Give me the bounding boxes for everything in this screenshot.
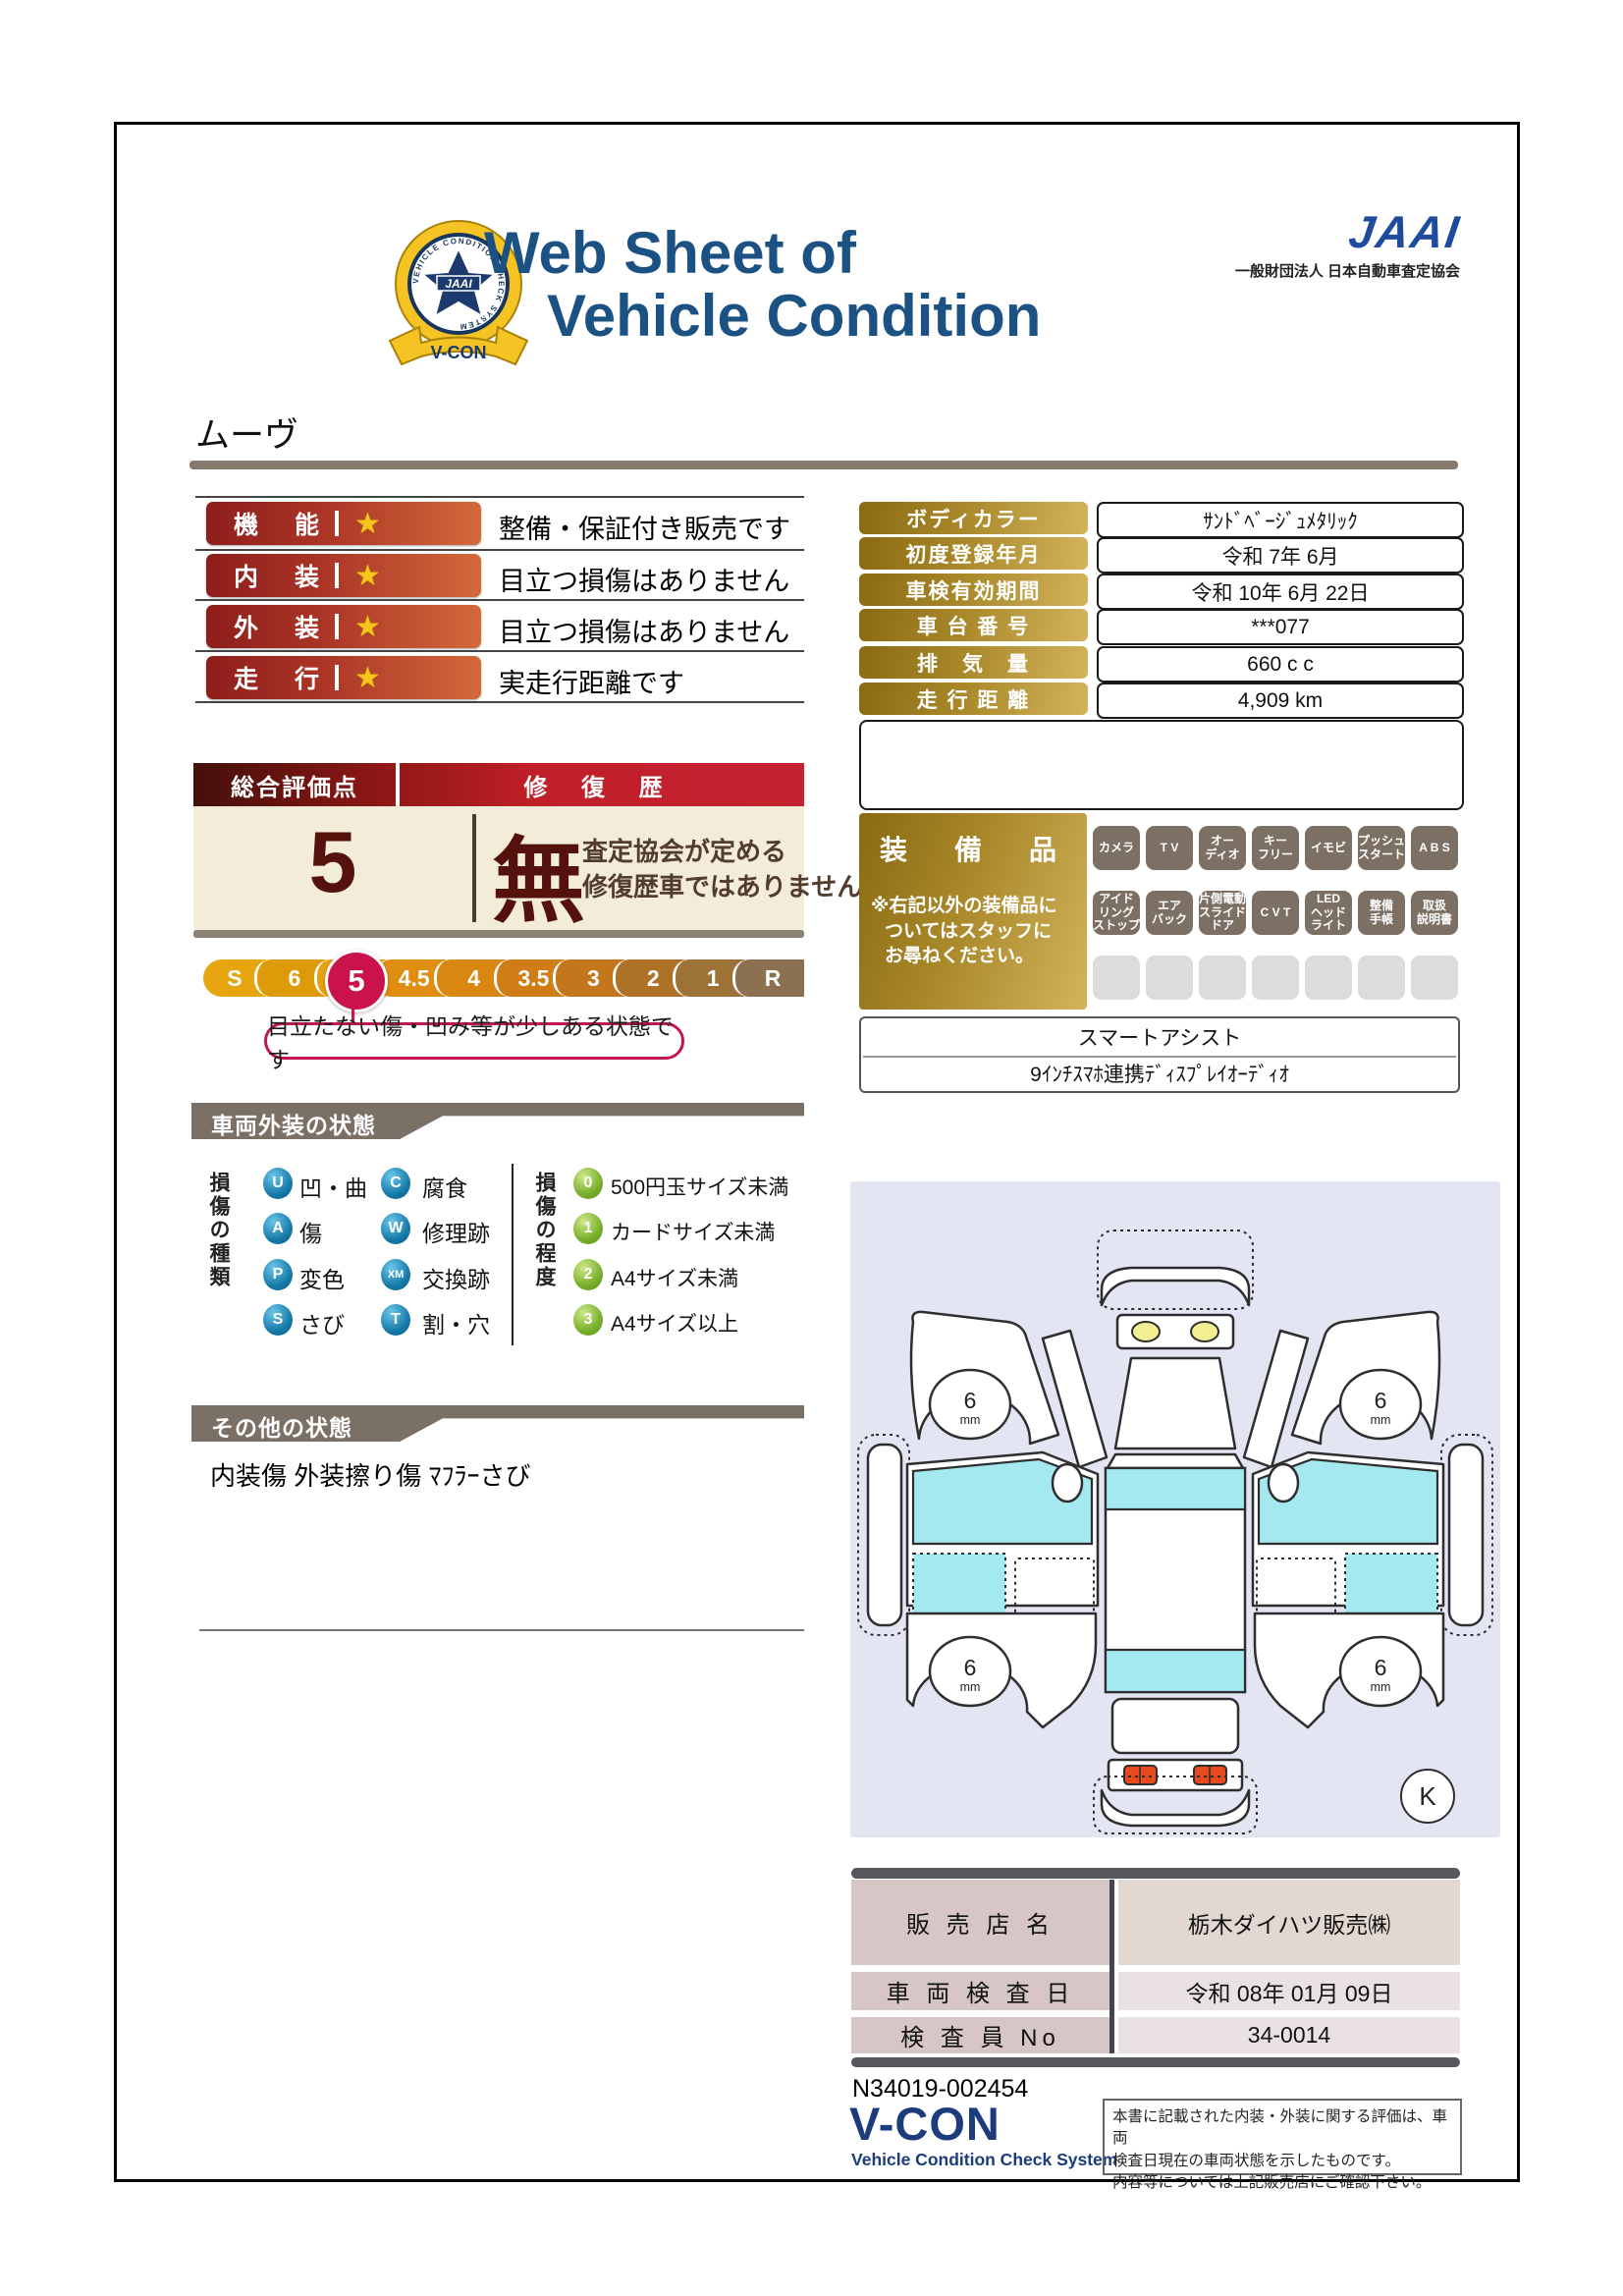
divider (335, 511, 339, 536)
equip-badge-audio: オー ディオ (1199, 826, 1246, 870)
info-value-chassis-no: ***077 (1097, 609, 1464, 645)
damage-type-label: 腐食 (422, 1170, 467, 1203)
windshield (1106, 1468, 1245, 1509)
info-value-mileage: 4,909 km (1097, 683, 1464, 719)
rating-badge-mileage: 走 行★ (206, 656, 481, 699)
legend-divider (512, 1164, 514, 1345)
info-label-mileage: 走 行 距 離 (859, 683, 1088, 715)
info-label-chassis-no: 車 台 番 号 (859, 609, 1088, 641)
damage-grade-icon-0: 0 (573, 1168, 603, 1199)
rating-label: 走 行 (206, 660, 325, 695)
equip-badge-empty (1093, 956, 1140, 1000)
rating-desc: 整備・保証付き販売です (499, 508, 790, 546)
equip-badge-idlingstop: アイド リング ストップ (1093, 891, 1140, 935)
page: VEHICLE CONDITION CHECK SYSTEM JAAI V-CO… (0, 0, 1623, 2296)
info-value-inspection-period: 令和 10年 6月 22日 (1097, 574, 1464, 610)
rating-separator (195, 701, 804, 703)
rating-badge-function: 機 能★ (206, 502, 481, 545)
equip-badge-keyfree: キー フリー (1252, 826, 1299, 870)
svg-text:mm: mm (960, 1413, 981, 1427)
damage-grade-label: A4サイズ以上 (611, 1308, 738, 1338)
svg-text:6: 6 (964, 1388, 977, 1413)
equipment-badges: カメラ T V オー ディオ キー フリー イモビ プッシュ スタート A B … (1093, 826, 1460, 1000)
jaai-logo: JAAI (1231, 205, 1464, 258)
overall-score-title: 総合評価点 (193, 768, 396, 802)
equip-badge-empty (1252, 956, 1299, 1000)
divider (335, 665, 339, 690)
car-diagram-panel: 6 mm 6 mm 6 mm 6 mm K (850, 1181, 1500, 1837)
damage-grade-icon-1: 1 (573, 1213, 603, 1244)
svg-text:6: 6 (964, 1655, 977, 1680)
overall-score-body: 5 無 査定協会が定める 修復歴車ではありません (193, 806, 804, 930)
equip-badge-empty (1358, 956, 1405, 1000)
damage-type-label: 交換跡 (422, 1261, 490, 1294)
divider-rule (189, 461, 1458, 469)
vehicle-model-name: ムーヴ (195, 408, 298, 458)
scale-seg-r: R (732, 959, 804, 997)
divider (396, 763, 400, 806)
divider-bar (193, 930, 804, 938)
info-label-inspection-period: 車検有効期間 (859, 574, 1088, 606)
damage-type-icon-s: S (263, 1304, 293, 1336)
rating-desc: 実走行距離です (499, 662, 684, 700)
equip-badge-abs: A B S (1411, 826, 1458, 870)
equip-badge-maintenance-book: 整備 手帳 (1358, 891, 1405, 935)
rear-window (1106, 1650, 1245, 1692)
rating-separator (195, 496, 804, 498)
info-empty-box (859, 720, 1464, 810)
svg-text:mm: mm (1371, 1680, 1391, 1694)
damage-type-label: 割・穴 (422, 1306, 490, 1339)
equip-badge-manual: 取扱 説明書 (1411, 891, 1458, 935)
equipment-extra-box: スマートアシスト 9ｲﾝﾁｽﾏﾎ連携ﾃﾞｨｽﾌﾟﾚｲｵｰﾃﾞｨｵ (859, 1016, 1460, 1093)
damage-type-label: 凹・曲 (299, 1170, 367, 1203)
damage-type-label: さび (299, 1306, 345, 1339)
score-scale: S 6 5 4.5 4 3.5 3 2 1 R (203, 959, 804, 997)
rating-label: 外 装 (206, 609, 325, 644)
damage-type-icon-w: W (381, 1213, 410, 1244)
rating-separator (195, 650, 804, 652)
damage-type-title: 損傷の種類 (203, 1172, 233, 1329)
overall-score-value: 5 (193, 812, 472, 912)
other-condition-text: 内装傷 外装擦り傷 ﾏﾌﾗｰさび (210, 1456, 530, 1493)
damage-type-label: 傷 (299, 1215, 322, 1248)
equipment-extra-row1: スマートアシスト (861, 1018, 1458, 1056)
divider (335, 563, 339, 588)
damage-grade-icon-3: 3 (573, 1304, 603, 1336)
divider (472, 814, 476, 922)
damage-type-icon-c: C (381, 1168, 410, 1199)
table-column-divider (1109, 1880, 1114, 2053)
table-top-bar (851, 1868, 1460, 1879)
table-bottom-bar (851, 2057, 1460, 2067)
svg-text:6: 6 (1375, 1655, 1387, 1680)
equipment-title: 装 備 品 (859, 829, 1087, 868)
rating-separator (195, 599, 804, 601)
equip-badge-empty (1305, 956, 1352, 1000)
equip-badge-empty (1411, 956, 1458, 1000)
star-icon: ★ (354, 507, 381, 541)
overall-score-header: 総合評価点 修 復 歴 (193, 763, 804, 806)
star-icon: ★ (354, 610, 381, 644)
svg-text:mm: mm (1371, 1413, 1391, 1427)
equip-badge-immobilizer: イモビ (1305, 826, 1352, 870)
dealer-row-inspection-date: 車 両 検 査 日 令和 08年 01月 09日 (851, 1972, 1460, 2010)
info-value-displacement: 660 c c (1097, 646, 1464, 683)
headlight-left-icon (1132, 1322, 1160, 1341)
equip-badge-empty (1146, 956, 1193, 1000)
repair-note-line2: 修復歴車ではありません (582, 867, 862, 903)
repair-flag: 無 (492, 806, 585, 941)
equipment-extra-row2: 9ｲﾝﾁｽﾏﾎ連携ﾃﾞｨｽﾌﾟﾚｲｵｰﾃﾞｨｵ (861, 1058, 1458, 1089)
svg-text:6: 6 (1375, 1388, 1387, 1413)
damage-grade-title: 損傷の程度 (529, 1172, 559, 1329)
equipment-note: ※右記以外の装備品に ついてはスタッフに お尋ねください。 (871, 894, 1087, 969)
damage-type-label: 変色 (299, 1261, 345, 1294)
rating-label: 内 装 (206, 558, 325, 593)
equip-badge-cvt: C V T (1252, 891, 1299, 935)
star-icon: ★ (354, 559, 381, 593)
rating-separator (195, 549, 804, 551)
equip-badge-slidedoor: 片側電動 スライド ドア (1199, 891, 1246, 935)
other-section-line (199, 1629, 804, 1631)
damage-type-icon-xm: XM (381, 1259, 410, 1290)
rating-desc: 目立つ損傷はありません (499, 611, 789, 649)
rating-desc: 目立つ損傷はありません (499, 560, 789, 598)
repair-note-line1: 査定協会が定める (582, 832, 786, 868)
info-label-displacement: 排 気 量 (859, 646, 1088, 679)
equip-badge-led: LED ヘッド ライト (1305, 891, 1352, 935)
vcon-logo: V-CON (849, 2101, 1001, 2147)
vcon-logo-subtitle: Vehicle Condition Check System (851, 2150, 1117, 2170)
section-header-other: その他の状態 (191, 1405, 804, 1442)
car-diagram: 6 mm 6 mm 6 mm 6 mm K (850, 1181, 1500, 1837)
svg-text:mm: mm (960, 1680, 981, 1694)
damage-type-icon-t: T (381, 1304, 410, 1336)
damage-type-icon-a: A (263, 1213, 293, 1244)
damage-grade-label: カードサイズ未満 (611, 1217, 775, 1246)
equip-badge-pushstart: プッシュ スタート (1358, 826, 1405, 870)
vehicle-condition-sheet: VEHICLE CONDITION CHECK SYSTEM JAAI V-CO… (114, 122, 1520, 2182)
damage-type-icon-p: P (263, 1259, 293, 1290)
org-name: 一般財団法人 日本自動車査定協会 (1235, 260, 1460, 281)
selected-score-marker: 5 (325, 950, 388, 1012)
info-label-body-color: ボディカラー (859, 502, 1088, 534)
rating-badge-interior: 内 装★ (206, 554, 481, 597)
info-label-first-reg: 初度登録年月 (859, 537, 1088, 570)
equip-badge-empty (1199, 956, 1246, 1000)
sheet-title-line2: Vehicle Condition (547, 282, 1041, 350)
damage-grade-icon-2: 2 (573, 1259, 603, 1290)
info-value-first-reg: 令和 7年 6月 (1097, 537, 1464, 574)
equip-badge-tv: T V (1146, 826, 1193, 870)
damage-grade-label: A4サイズ未満 (611, 1263, 738, 1292)
dealer-row-inspector-no: 検 査 員 No 34-0014 (851, 2017, 1460, 2053)
dealer-table: 販 売 店 名 栃木ダイハツ販売㈱ 車 両 検 査 日 令和 08年 01月 0… (851, 1868, 1460, 2067)
equipment-panel: 装 備 品 ※右記以外の装備品に ついてはスタッフに お尋ねください。 (859, 813, 1087, 1010)
svg-text:JAAI: JAAI (445, 277, 472, 291)
section-header-exterior: 車両外装の状態 (191, 1103, 804, 1139)
rating-label: 機 能 (206, 506, 325, 541)
rating-badge-exterior: 外 装★ (206, 605, 481, 648)
damage-type-label: 修理跡 (422, 1215, 490, 1248)
equip-badge-camera: カメラ (1093, 826, 1140, 870)
disclaimer-box: 本書に記載された内装・外装に関する評価は、車両 検査日現在の車両状態を示したもの… (1103, 2099, 1462, 2175)
equip-badge-airbag: エア バック (1146, 891, 1193, 935)
damage-type-icon-u: U (263, 1168, 293, 1199)
sheet-title-line1: Web Sheet of (484, 219, 856, 287)
org-logo-block: JAAI 一般財団法人 日本自動車査定協会 (1235, 205, 1460, 281)
svg-text:V-CON: V-CON (430, 343, 486, 362)
star-icon: ★ (354, 661, 381, 695)
damage-grade-label: 500円玉サイズ未満 (611, 1172, 788, 1201)
repair-history-title: 修 復 歴 (396, 768, 804, 802)
score-callout: 目立たない傷・凹み等が少しある状態です (264, 1022, 684, 1060)
headlight-right-icon (1191, 1322, 1218, 1341)
divider (335, 614, 339, 639)
dealer-row-shop: 販 売 店 名 栃木ダイハツ販売㈱ (851, 1880, 1460, 1965)
info-value-body-color: ｻﾝﾄﾞﾍﾞｰｼﾞｭﾒﾀﾘｯｸ (1097, 502, 1464, 538)
corner-mark: K (1419, 1781, 1436, 1811)
